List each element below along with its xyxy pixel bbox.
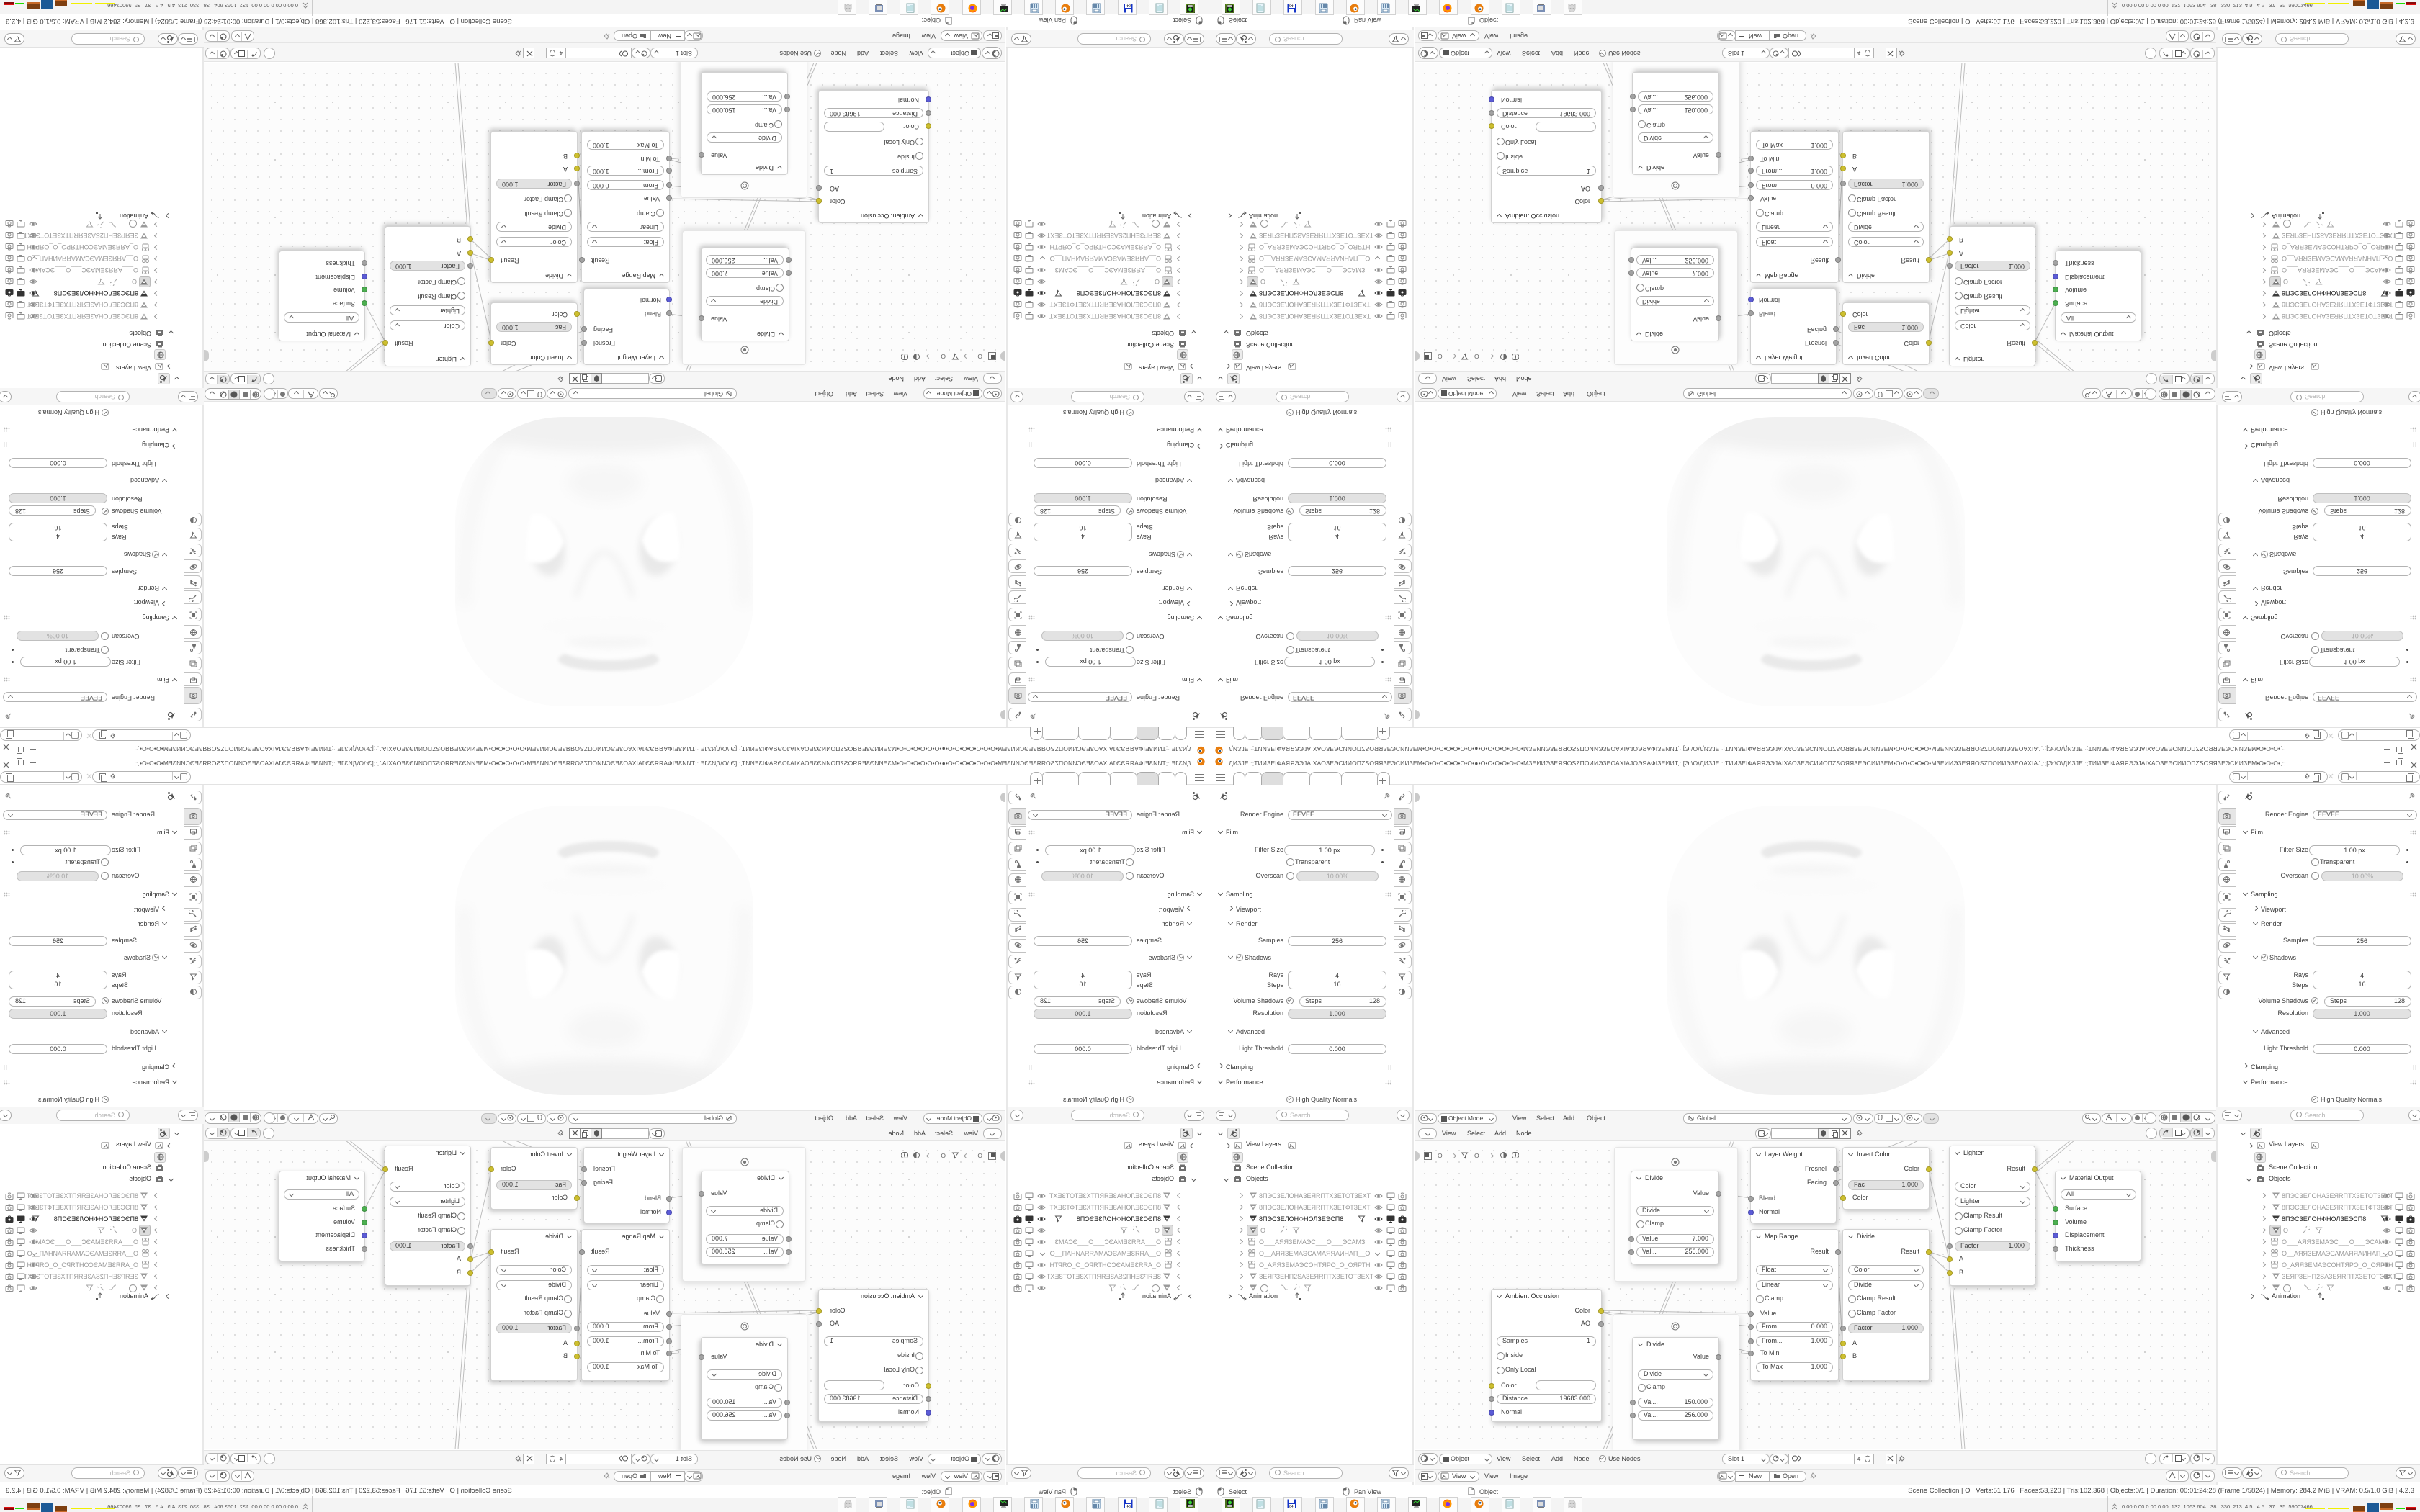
svg-text:64: 64 bbox=[1289, 1505, 1294, 1509]
svg-text:64: 64 bbox=[1126, 3, 1131, 7]
svg-text:64: 64 bbox=[1126, 1505, 1131, 1509]
svg-text:64: 64 bbox=[1289, 3, 1294, 7]
